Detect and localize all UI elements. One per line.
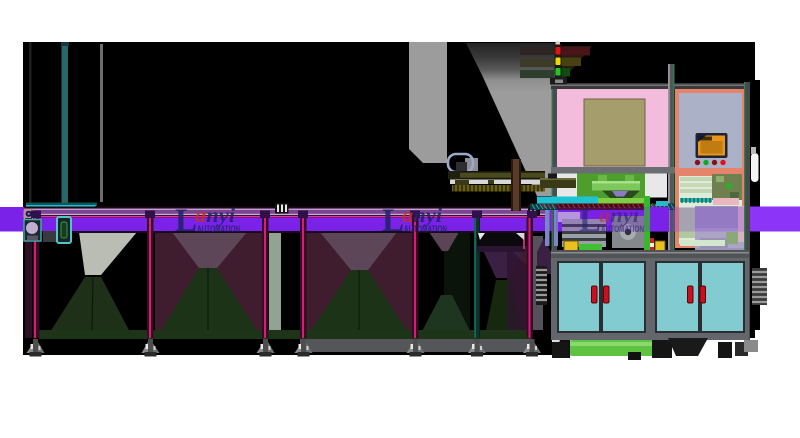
svg-text:AUTOMATION: AUTOMATION	[197, 224, 240, 234]
svg-text:AUTOMATION: AUTOMATION	[404, 224, 447, 234]
svg-text:L: L	[579, 203, 601, 239]
svg-text:AUTOMATION: AUTOMATION	[601, 224, 644, 234]
svg-text:L: L	[382, 203, 404, 239]
svg-text:L: L	[175, 203, 197, 239]
